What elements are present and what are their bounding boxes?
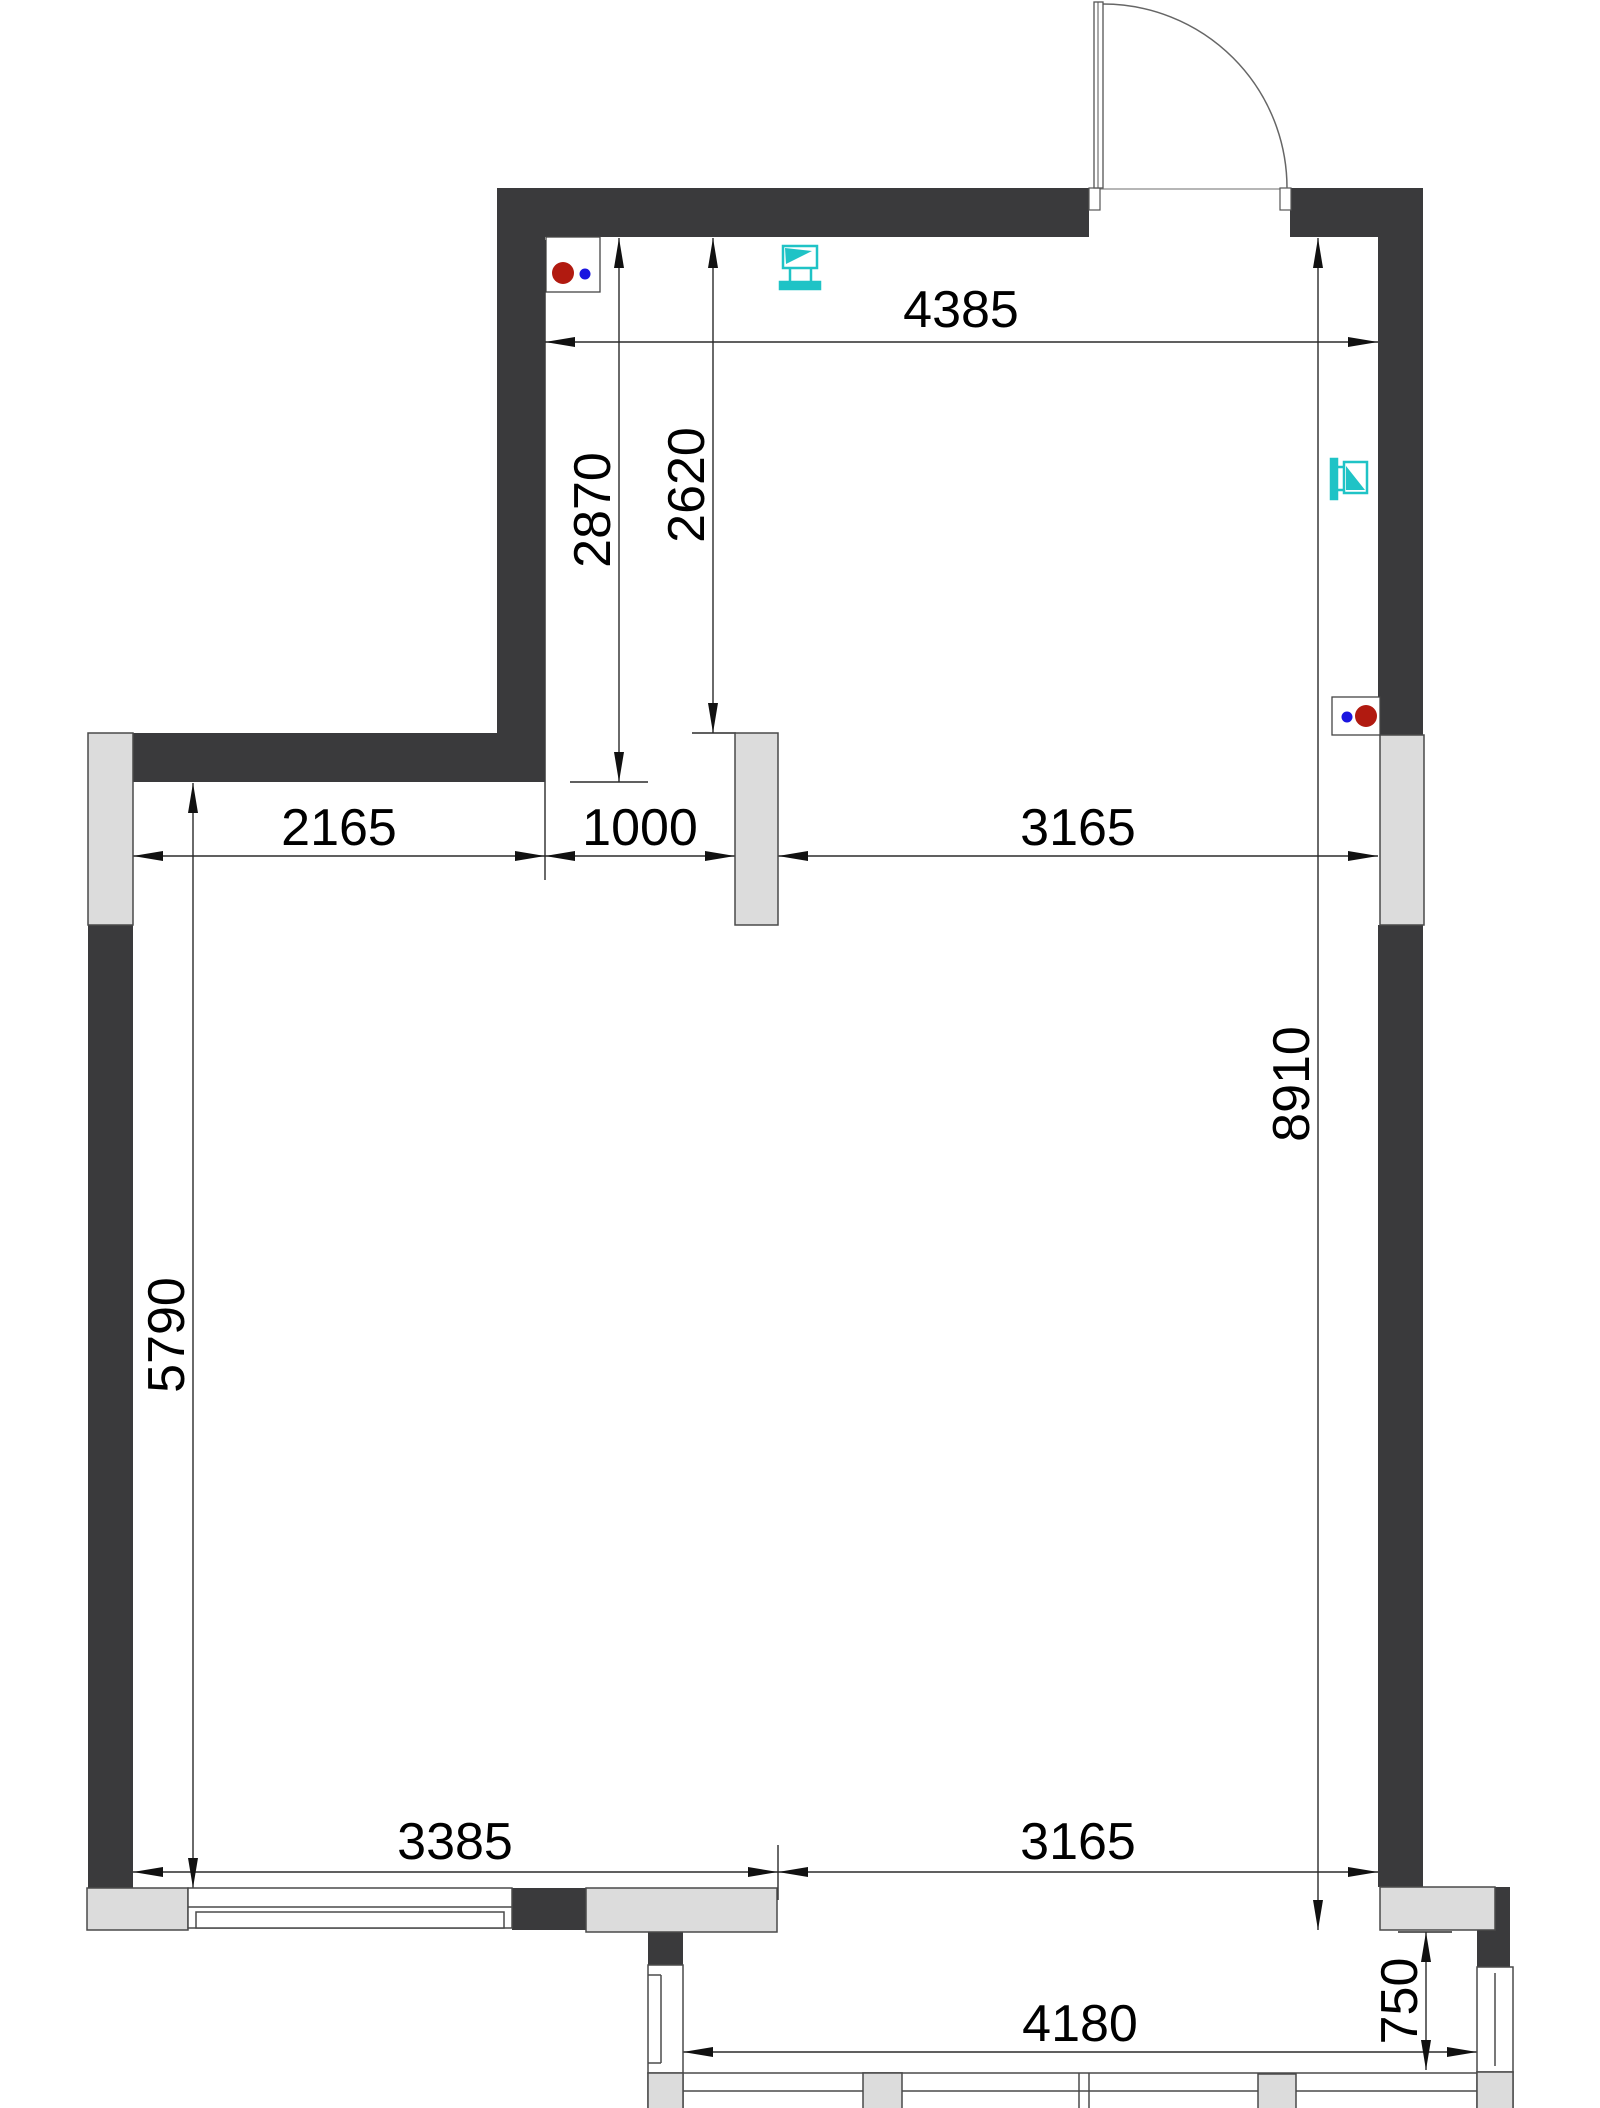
dim-label-3385: 3385 — [397, 1816, 513, 1868]
window-icon — [188, 1888, 1513, 2108]
dim-label-2620: 2620 — [661, 427, 713, 543]
door-swing-icon — [1089, 2, 1291, 210]
floor-plan-drawing — [0, 0, 1600, 2108]
dim-label-3165-upper: 3165 — [1020, 802, 1136, 854]
socket-icon — [1332, 697, 1380, 735]
dim-label-3165-lower: 3165 — [1020, 1816, 1136, 1868]
dim-label-2165: 2165 — [281, 802, 397, 854]
tv-icon — [1331, 459, 1367, 499]
socket-icon — [546, 237, 600, 292]
dim-label-2870: 2870 — [567, 452, 619, 568]
tv-icon — [780, 246, 820, 289]
dim-label-1000: 1000 — [582, 802, 698, 854]
dimension-lines — [133, 238, 1477, 2070]
floor-plan: 4385 2870 2620 2165 1000 3165 5790 8910 … — [0, 0, 1600, 2108]
dim-label-4180: 4180 — [1022, 1998, 1138, 2050]
dim-label-5790: 5790 — [141, 1277, 193, 1393]
dim-label-750: 750 — [1374, 1958, 1426, 2045]
dimension-arrows — [133, 238, 1477, 2070]
dim-label-8910: 8910 — [1266, 1026, 1318, 1142]
partition-stub — [735, 733, 778, 925]
dim-label-4385: 4385 — [903, 284, 1019, 336]
